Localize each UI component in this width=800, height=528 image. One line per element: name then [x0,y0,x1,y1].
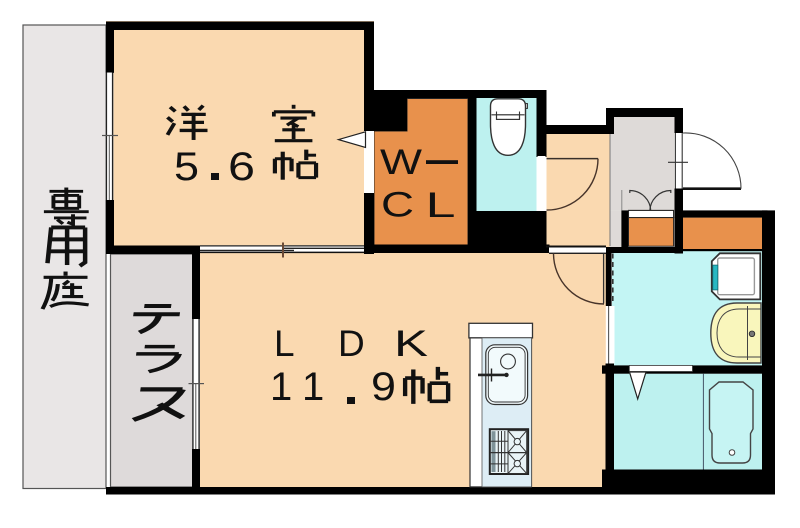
svg-text:D: D [338,323,365,364]
svg-text:C: C [381,186,414,225]
svg-text:5: 5 [174,145,199,189]
svg-text:9: 9 [371,365,396,409]
svg-text:6: 6 [228,145,255,189]
svg-text:W: W [380,143,422,182]
svg-text:L: L [274,323,295,364]
svg-text:1: 1 [270,365,292,409]
svg-text:1: 1 [302,365,324,409]
svg-text:L: L [426,186,456,225]
svg-text:K: K [394,323,428,364]
